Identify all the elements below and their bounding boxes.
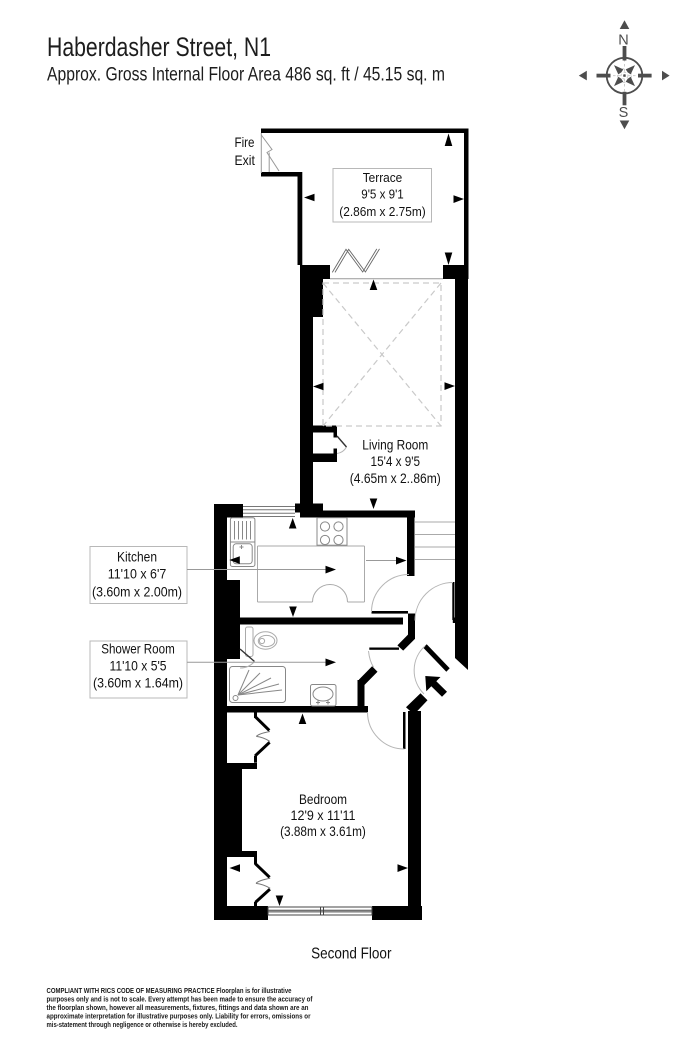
svg-text:(3.60m x 1.64m): (3.60m x 1.64m) — [93, 676, 183, 691]
svg-text:mis-statement through negligen: mis-statement through negligence or othe… — [47, 1020, 238, 1029]
svg-text:Approx. Gross Internal Floor A: Approx. Gross Internal Floor Area 486 sq… — [47, 63, 445, 85]
svg-text:(3.88m x 3.61m): (3.88m x 3.61m) — [280, 824, 366, 839]
svg-text:Shower Room: Shower Room — [101, 642, 175, 657]
svg-text:12'9 x 11'11: 12'9 x 11'11 — [291, 808, 356, 823]
svg-text:Terrace: Terrace — [363, 171, 403, 185]
svg-text:9'5 x 9'1: 9'5 x 9'1 — [361, 188, 404, 202]
svg-text:Exit: Exit — [235, 152, 255, 168]
svg-text:Living Room: Living Room — [362, 438, 428, 453]
svg-text:N: N — [618, 33, 628, 49]
svg-text:Haberdasher Street, N1: Haberdasher Street, N1 — [47, 32, 271, 62]
svg-text:Kitchen: Kitchen — [117, 550, 157, 565]
svg-text:Bedroom: Bedroom — [299, 792, 347, 807]
svg-text:(2.86m x 2.75m): (2.86m x 2.75m) — [339, 205, 426, 219]
svg-text:Second Floor: Second Floor — [311, 946, 392, 963]
svg-text:(4.65m x 2..86m): (4.65m x 2..86m) — [350, 471, 441, 486]
svg-text:11'10 x 6'7: 11'10 x 6'7 — [108, 567, 167, 582]
svg-text:Fire: Fire — [235, 134, 255, 150]
svg-text:(3.60m x 2.00m): (3.60m x 2.00m) — [92, 585, 182, 600]
svg-text:11'10 x 5'5: 11'10 x 5'5 — [110, 659, 167, 674]
svg-text:15'4 x 9'5: 15'4 x 9'5 — [371, 454, 421, 469]
svg-text:S: S — [619, 105, 629, 121]
